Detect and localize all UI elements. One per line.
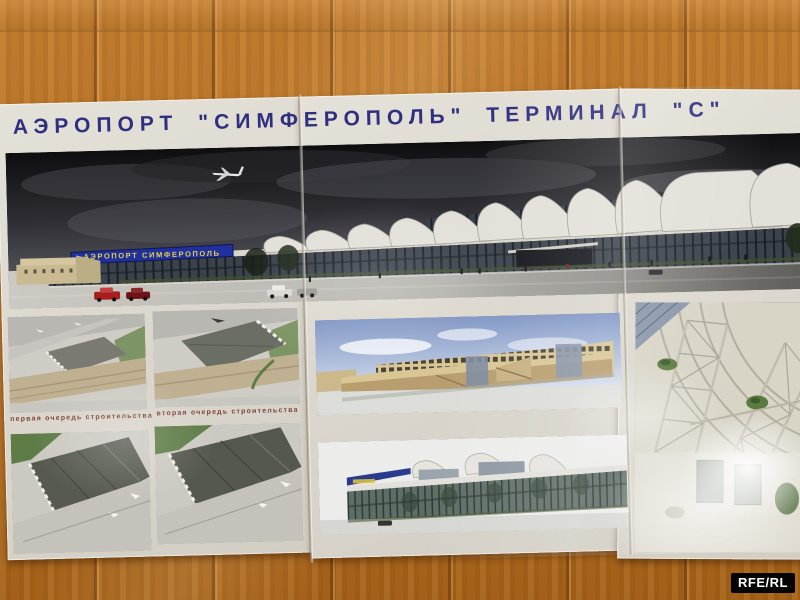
- interior-structure-rendering: [635, 302, 800, 552]
- presentation-board: АЭРОПОРТ "СИМФЕРОПОЛЬ" ТЕРМИНАЛ "С": [0, 84, 800, 570]
- phase-2-closeup-thumbnail: [154, 423, 303, 545]
- phase-1-aerial-thumbnail: [8, 314, 147, 413]
- left-annex-building: [16, 255, 101, 285]
- main-terminal-rendering: АЭРОПОРТ СИМФЕРОПОЛЬ: [5, 133, 800, 309]
- phase-1-closeup-thumbnail: [11, 431, 152, 554]
- front-elevation-rendering: [318, 434, 630, 535]
- wood-wall-top-trim: [0, 0, 800, 32]
- photo-of-presentation-board: АЭРОПОРТ "СИМФЕРОПОЛЬ" ТЕРМИНАЛ "С": [0, 0, 800, 600]
- airside-elevation-rendering: [315, 313, 622, 416]
- phase-2-aerial-thumbnail: [153, 308, 300, 408]
- rfe-rl-watermark: RFE/RL: [731, 573, 795, 593]
